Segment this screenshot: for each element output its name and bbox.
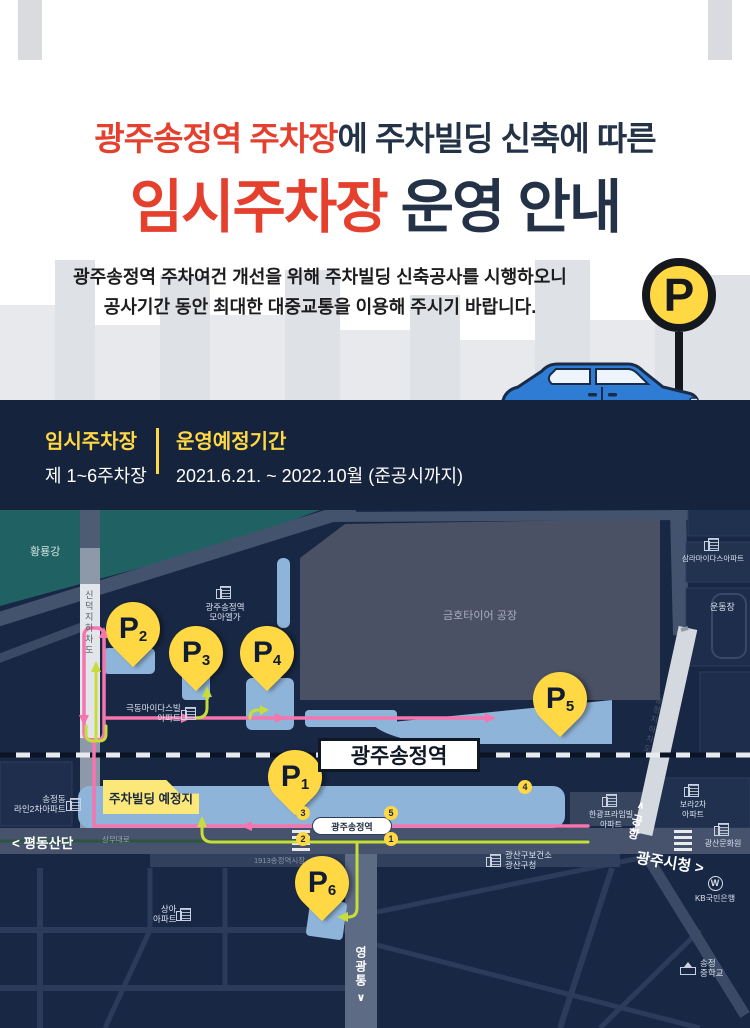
kb-bank-label: KB국민은행 bbox=[695, 894, 735, 904]
pin-p3: P3 bbox=[158, 615, 234, 691]
period-value: 2021.6.21. ~ 2022.10월 (준공시까지) bbox=[176, 462, 463, 488]
description: 광주송정역 주차여건 개선을 위해 주차빌딩 신축공사를 시행하오니 공사기간 … bbox=[0, 262, 640, 322]
sinduk-road-label: 신덕지하차도 bbox=[83, 590, 94, 656]
headline: 광주송정역 주차장에 주차빌딩 신축에 따른 bbox=[0, 112, 750, 160]
exit-3-badge: 3 bbox=[296, 806, 310, 820]
headline-rest: 에 주차빌딩 신축에 따른 bbox=[337, 120, 655, 157]
building-icon bbox=[70, 798, 81, 811]
exit-2-badge: 2 bbox=[296, 832, 310, 846]
building-icon bbox=[185, 707, 196, 720]
parking-poster: 광주송정역 주차장에 주차빌딩 신축에 따른 임시주차장 운영 안내 광주송정역… bbox=[0, 0, 750, 1028]
car-illustration bbox=[488, 350, 713, 400]
kukdong-label: 극동마이다스빌 아파트 bbox=[126, 703, 181, 723]
bora-apartment: 보라2차 아파트 bbox=[670, 784, 716, 819]
chevron-down-icon: ∨ bbox=[357, 991, 366, 1004]
line2-apartment: 송정동 라인2차아파트 bbox=[14, 794, 81, 814]
exit-1-badge: 1 bbox=[384, 832, 398, 846]
chevron-up-icon: ∧ bbox=[635, 800, 646, 813]
middle-school: 송정 중학교 bbox=[680, 958, 723, 978]
building-icon bbox=[606, 794, 617, 807]
info-band: 임시주차장 제 1~6주차장 운영예정기간 2021.6.21. ~ 2022.… bbox=[0, 400, 750, 510]
pin-p2: P2 bbox=[95, 591, 171, 667]
page-title: 임시주차장 운영 안내 bbox=[0, 160, 750, 244]
samra-apartment: 삼라마이다스아파트 bbox=[676, 538, 750, 563]
description-line1: 광주송정역 주차여건 개선을 위해 주차빌딩 신축공사를 시행하오니 bbox=[0, 262, 640, 292]
building-icon bbox=[708, 538, 719, 551]
factory-label: 금호타이어 공장 bbox=[380, 610, 580, 623]
direction-yeonggwangtong: 영광통 ∨ bbox=[348, 946, 374, 1004]
lot-value: 제 1~6주차장 bbox=[45, 462, 147, 488]
sanga-label: 상아 아파트 bbox=[153, 904, 176, 924]
yeonggwangtong-label: 영광통 bbox=[353, 946, 370, 988]
bora-label: 보라2차 아파트 bbox=[680, 800, 707, 819]
sangmu-road-label: 상무대로 bbox=[102, 835, 130, 844]
building-icon bbox=[718, 823, 729, 836]
kb-bank: W KB국민은행 bbox=[688, 876, 742, 904]
line2-label: 송정동 라인2차아파트 bbox=[14, 794, 66, 814]
lot-label: 임시주차장 bbox=[45, 425, 147, 454]
sports-field-label: 운동장 bbox=[710, 602, 735, 613]
building-icon bbox=[688, 784, 699, 797]
band-divider bbox=[156, 428, 159, 474]
building-icon bbox=[220, 586, 231, 599]
station-box: 광주송정역 bbox=[318, 738, 480, 772]
won-icon: W bbox=[708, 876, 723, 891]
top-section: 광주송정역 주차장에 주차빌딩 신축에 따른 임시주차장 운영 안내 광주송정역… bbox=[0, 0, 750, 400]
direction-pyeongdong: < 평동산단 bbox=[12, 832, 73, 852]
samra-label: 삼라마이다스아파트 bbox=[682, 554, 744, 563]
headline-highlight: 광주송정역 주차장 bbox=[94, 120, 337, 157]
building-icon bbox=[490, 854, 501, 867]
school-icon bbox=[680, 967, 696, 975]
moaelga-apartment: 광주송정역 모아엘가 bbox=[193, 586, 257, 622]
moaelga-label: 광주송정역 모아엘가 bbox=[205, 602, 244, 622]
kukdong-apartment: 극동마이다스빌 아파트 bbox=[126, 703, 196, 723]
subway-station-pill: 광주송정역 bbox=[312, 817, 392, 835]
title-rest: 운영 안내 bbox=[387, 175, 621, 240]
gwangsan-office-label: 광산구보건소 광산구청 bbox=[505, 850, 552, 870]
river-label: 황룡강 bbox=[30, 546, 60, 559]
area-map: 황룡강 신덕지하차도 금호타이어 공장 광주송정역 모아엘가 삼라마이다스아파트… bbox=[0, 510, 750, 1028]
period-label: 운영예정기간 bbox=[176, 425, 463, 454]
airport-label: 공항 bbox=[624, 812, 647, 843]
exit-5-badge: 5 bbox=[384, 806, 398, 820]
description-line2: 공사기간 동안 최대한 대중교통을 이용해 주시기 바랍니다. bbox=[0, 292, 640, 322]
pin-p6: P6 bbox=[284, 845, 360, 921]
pin-p5: P5 bbox=[522, 661, 598, 737]
culture-center-label: 광산문화원 bbox=[705, 839, 742, 849]
exit-4-badge: 4 bbox=[518, 780, 532, 794]
school-label: 송정 중학교 bbox=[700, 958, 723, 978]
title-highlight: 임시주차장 bbox=[130, 175, 387, 240]
parking-sign-icon: P bbox=[642, 258, 716, 332]
culture-center: 광산문화원 bbox=[698, 823, 748, 849]
pin-p4: P4 bbox=[229, 615, 305, 691]
building-icon bbox=[180, 908, 191, 921]
gwangsan-office: 광산구보건소 광산구청 bbox=[490, 850, 552, 870]
sanga-apartment: 상아 아파트 bbox=[153, 904, 191, 924]
